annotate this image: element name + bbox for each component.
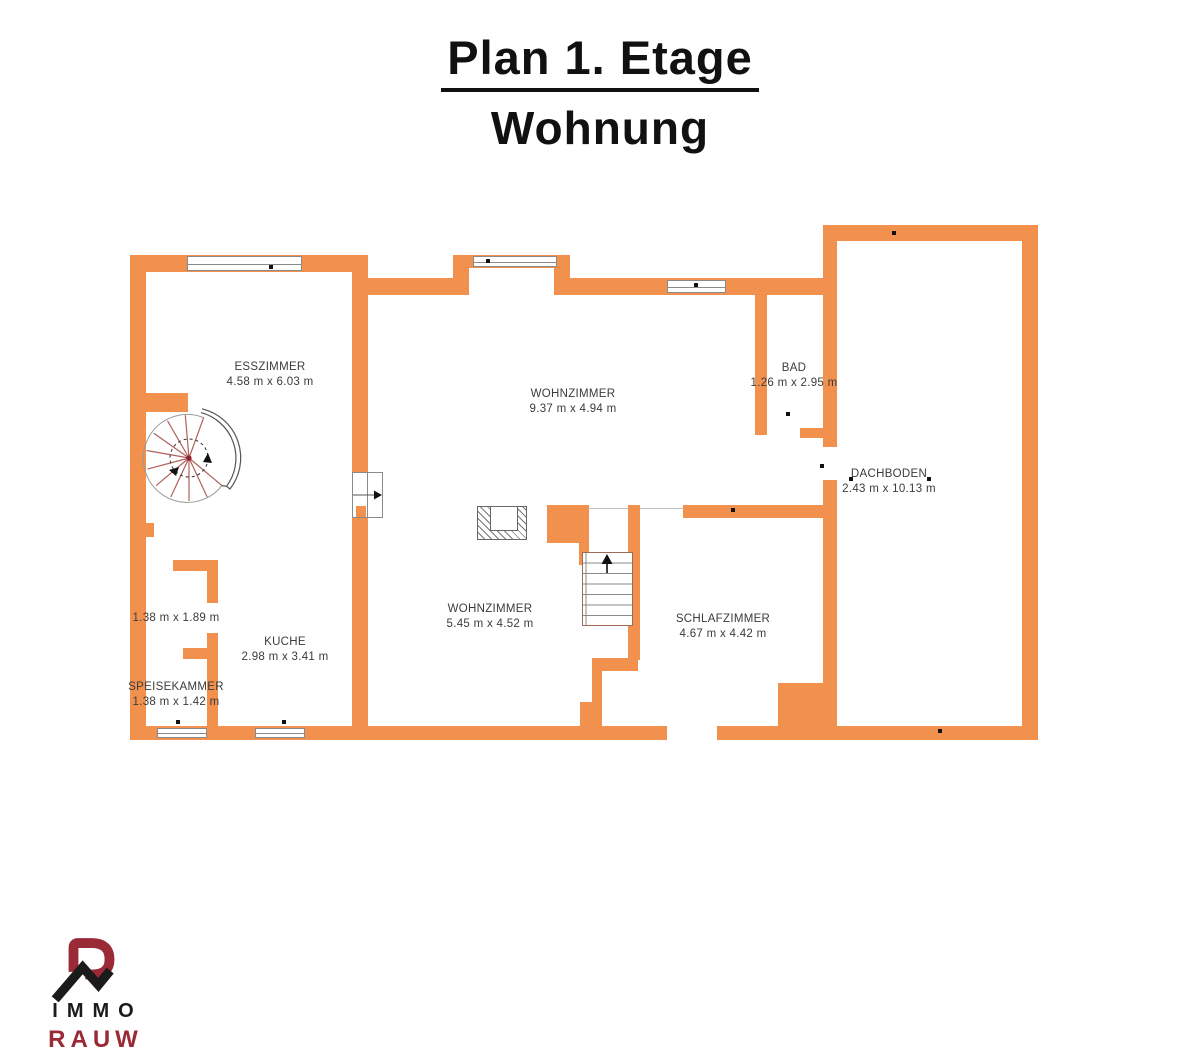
room-label-kueche: KUCHE 2.98 m x 3.41 m (242, 635, 329, 665)
wall-schlafzimmer-top (683, 505, 823, 518)
room-label-wohnzimmer-klein: WOHNZIMMER 5.45 m x 4.52 m (447, 602, 534, 632)
room-dims: 4.67 m x 4.42 m (676, 627, 770, 642)
logo-text-rauw: RAUW (30, 1026, 156, 1050)
room-name: SCHLAFZIMMER (676, 612, 770, 627)
tick-window-bottom-kueche (282, 720, 286, 724)
wall-dachboden-right (1022, 225, 1038, 740)
page-title: Plan 1. Etage Wohnung (0, 30, 1200, 155)
room-name: DACHBODEN (842, 467, 936, 482)
door-symbol-esszimmer (352, 472, 383, 518)
room-label-schlafzimmer: SCHLAFZIMMER 4.67 m x 4.42 m (676, 612, 770, 642)
room-dims: 4.58 m x 6.03 m (227, 375, 314, 390)
wall-dachboden-top (823, 225, 1037, 241)
room-name: ESSZIMMER (227, 360, 314, 375)
chimney-hatched-symbol (477, 506, 527, 540)
wall-understair-v (592, 670, 602, 704)
room-label-abstellraum: 1.38 m x 1.89 m (133, 611, 220, 626)
room-name: WOHNZIMMER (447, 602, 534, 617)
wall-partition-vertical-upper (207, 570, 218, 603)
window-esszimmer-top (187, 256, 302, 271)
title-wohnung: Wohnung (0, 101, 1200, 155)
wall-understair-block (580, 702, 602, 728)
wall-wohnzimmer-top-left (360, 278, 455, 295)
room-dims: 5.45 m x 4.52 m (447, 617, 534, 632)
room-dims: 2.43 m x 10.13 m (842, 482, 936, 497)
window-bottom-kueche (255, 728, 305, 738)
room-name: BAD (751, 361, 838, 376)
wall-closet-top-stub (173, 560, 218, 571)
room-dims: 9.37 m x 4.94 m (530, 402, 617, 417)
room-dims: 2.98 m x 3.41 m (242, 650, 329, 665)
tick-window-bottom-left (176, 720, 180, 724)
room-dims: 1.38 m x 1.89 m (133, 611, 220, 626)
floorplan-page: Plan 1. Etage Wohnung (0, 0, 1200, 1050)
opening-line-stairs-right (640, 508, 683, 509)
room-name: WOHNZIMMER (530, 387, 617, 402)
wall-bottom-right (717, 726, 1037, 740)
tick-schlaf-top (731, 508, 735, 512)
window-bottom-left (157, 728, 207, 738)
wall-pantry-partition (183, 648, 207, 659)
wall-dachboden-left-upper (823, 225, 837, 447)
room-label-bad: BAD 1.26 m x 2.95 m (751, 361, 838, 391)
tick-window-bay (486, 259, 490, 263)
room-label-esszimmer: ESSZIMMER 4.58 m x 6.03 m (227, 360, 314, 390)
room-label-dachboden: DACHBODEN 2.43 m x 10.13 m (842, 467, 936, 497)
spiral-staircase (133, 403, 245, 515)
wall-bad-bottom-stub (800, 428, 823, 438)
tick-dachboden-top (892, 231, 896, 235)
room-name: KUCHE (242, 635, 329, 650)
chimney-flue (490, 506, 518, 531)
tick-dachboden-left (820, 464, 824, 468)
wall-bottom-left (130, 726, 667, 740)
straight-staircase (576, 549, 638, 631)
room-dims: 1.38 m x 1.42 m (128, 695, 224, 710)
tick-bad-door (786, 412, 790, 416)
wall-left-bump (146, 523, 154, 537)
tick-window-wohnzimmer (694, 283, 698, 287)
room-label-speisekammer: SPEISEKAMMER 1.38 m x 1.42 m (128, 680, 224, 710)
room-dims: 1.26 m x 2.95 m (751, 376, 838, 391)
logo-text-immo: IMMO (30, 1000, 156, 1023)
wall-mid-block (547, 505, 589, 543)
room-name: SPEISEKAMMER (128, 680, 224, 695)
tick-bottom-right (938, 729, 942, 733)
room-label-wohnzimmer-gross: WOHNZIMMER 9.37 m x 4.94 m (530, 387, 617, 417)
opening-line-stairs-left (589, 508, 628, 509)
title-plan-etage: Plan 1. Etage (441, 30, 759, 92)
wall-schlafzimmer-pillar (778, 683, 827, 728)
tick-window-esszimmer (269, 265, 273, 269)
immo-rauw-logo-icon (48, 930, 118, 1002)
